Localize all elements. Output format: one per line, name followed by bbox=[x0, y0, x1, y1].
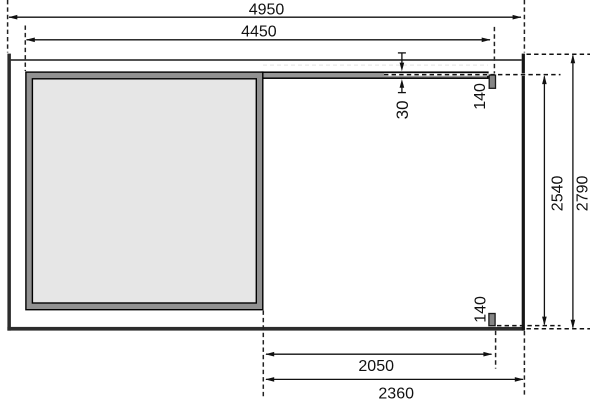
svg-text:2360: 2360 bbox=[378, 386, 414, 400]
svg-text:2050: 2050 bbox=[358, 358, 394, 375]
svg-text:4450: 4450 bbox=[241, 24, 277, 41]
svg-text:4950: 4950 bbox=[249, 2, 285, 19]
svg-text:2540: 2540 bbox=[550, 176, 567, 212]
svg-text:2790: 2790 bbox=[574, 176, 591, 212]
svg-text:140: 140 bbox=[472, 83, 489, 110]
svg-text:30: 30 bbox=[393, 100, 412, 119]
svg-text:140: 140 bbox=[472, 296, 489, 323]
